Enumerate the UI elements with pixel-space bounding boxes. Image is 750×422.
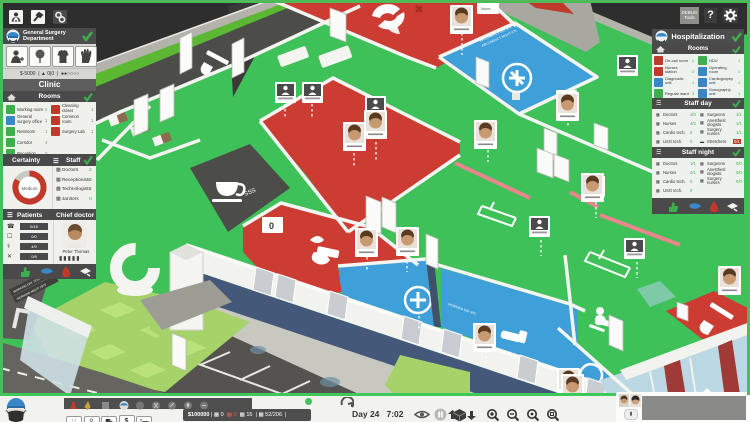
svg-text:Medium: Medium	[21, 186, 37, 191]
svg-text:None: None	[481, 6, 491, 11]
svg-text:0: 0	[269, 221, 274, 231]
